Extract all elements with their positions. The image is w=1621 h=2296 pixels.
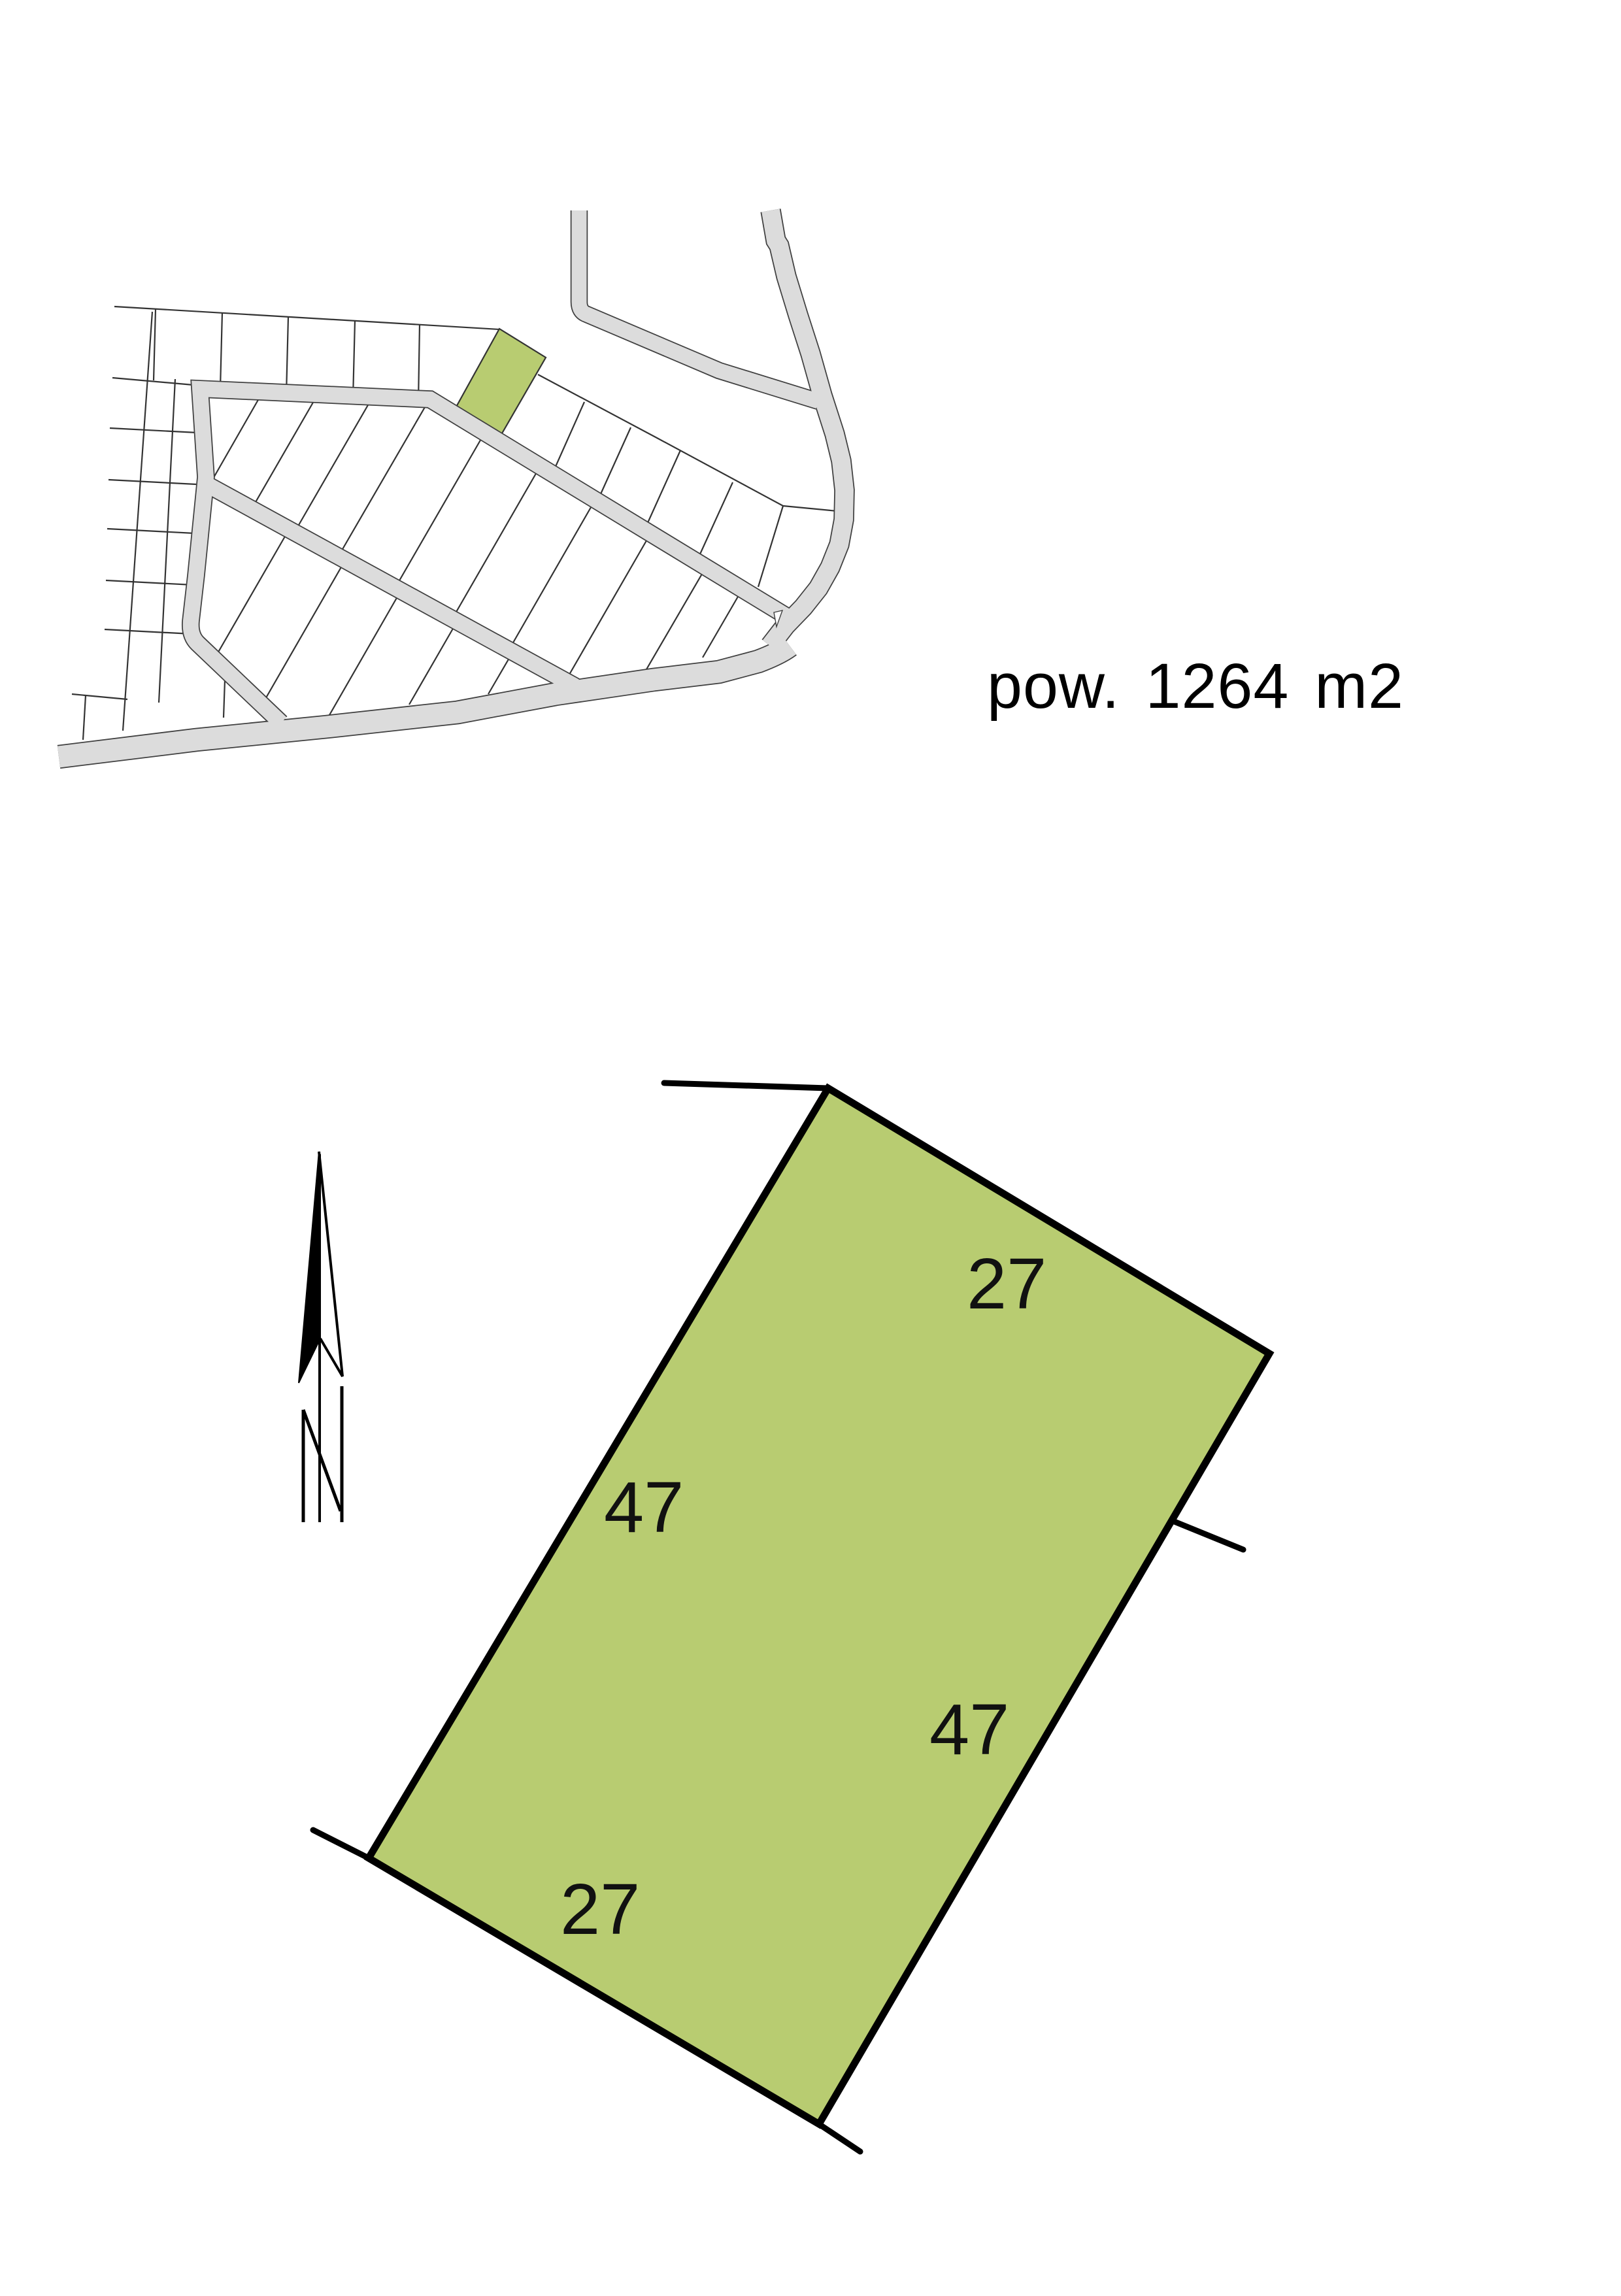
svg-text:27: 27 xyxy=(967,1244,1046,1324)
svg-text:47: 47 xyxy=(929,1689,1009,1770)
svg-text:47: 47 xyxy=(604,1467,684,1548)
svg-text:27: 27 xyxy=(560,1869,640,1950)
svg-text:pow. 1264 m2: pow. 1264 m2 xyxy=(987,650,1404,722)
